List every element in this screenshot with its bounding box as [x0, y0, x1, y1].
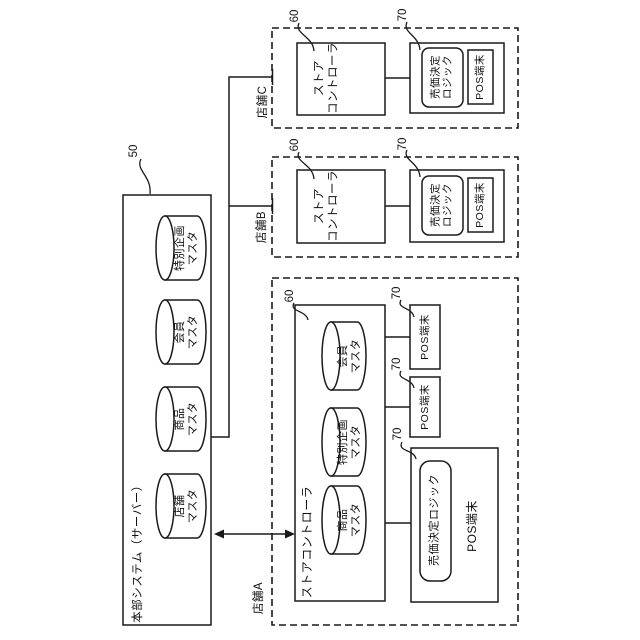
store-a-db-special-plan-master: 特別企画 マスタ [337, 419, 363, 465]
ref-70-store-a-pos-main: 70 [392, 428, 406, 441]
hq-db-store-master: 店舗 マスタ [174, 489, 200, 524]
arrowhead-left [214, 530, 224, 539]
store-a-db-product-master: 商品 マスタ [337, 503, 363, 538]
hq-db-special-plan-master: 特別企画 マスタ [174, 225, 200, 271]
ref-70-store-a-pos2: 70 [391, 358, 405, 371]
store-a-pos1-label: POS端末 [419, 314, 431, 360]
ref-50: 50 [128, 145, 142, 158]
store-a-label: 店舗A [253, 582, 267, 614]
store-b-logic-label: 売価決定 ロジック [430, 183, 455, 227]
store-a-logic-label: 売価決定ロジック [429, 474, 442, 566]
ref-70-store-b: 70 [397, 138, 411, 151]
store-b-pos-label: POS端末 [474, 182, 486, 228]
store-b-controller-label: ストア コントローラ [313, 170, 340, 242]
store-c-pos-label: POS端末 [474, 54, 486, 100]
ref-70-store-a-pos1: 70 [391, 287, 405, 300]
arrowhead-right [285, 530, 295, 539]
store-c-logic-label: 売価決定 ロジック [430, 55, 455, 99]
store-c-controller-label: ストア コントローラ [313, 42, 340, 114]
leader-50 [140, 159, 150, 194]
store-a-pos2-label: POS端末 [419, 384, 431, 430]
hq-db-product-master: 商品 マスタ [174, 402, 200, 437]
hq-title: 本部システム（サーバー） [132, 479, 146, 623]
store-a-controller-label: ストアコントローラ [300, 486, 314, 599]
store-a-pos-main-label: POS端末 [465, 500, 479, 552]
hq-trunk-line [211, 77, 272, 437]
store-a-db-member-master: 会員 マスタ [337, 339, 363, 374]
store-b-label: 店舗B [256, 211, 270, 243]
ref-60-store-a: 60 [284, 290, 298, 303]
ref-60-store-c: 60 [289, 10, 303, 23]
ref-70-store-c: 70 [397, 9, 411, 22]
hq-db-member-master: 会員 マスタ [174, 315, 200, 350]
ref-60-store-b: 60 [289, 139, 303, 152]
patent-diagram: 50 60 70 60 70 60 70 70 70 本部システム（サーバー） … [0, 0, 640, 640]
store-c-label: 店舗C [257, 86, 271, 119]
store-c-controller-box [297, 43, 385, 115]
store-b-controller-box [297, 170, 385, 243]
